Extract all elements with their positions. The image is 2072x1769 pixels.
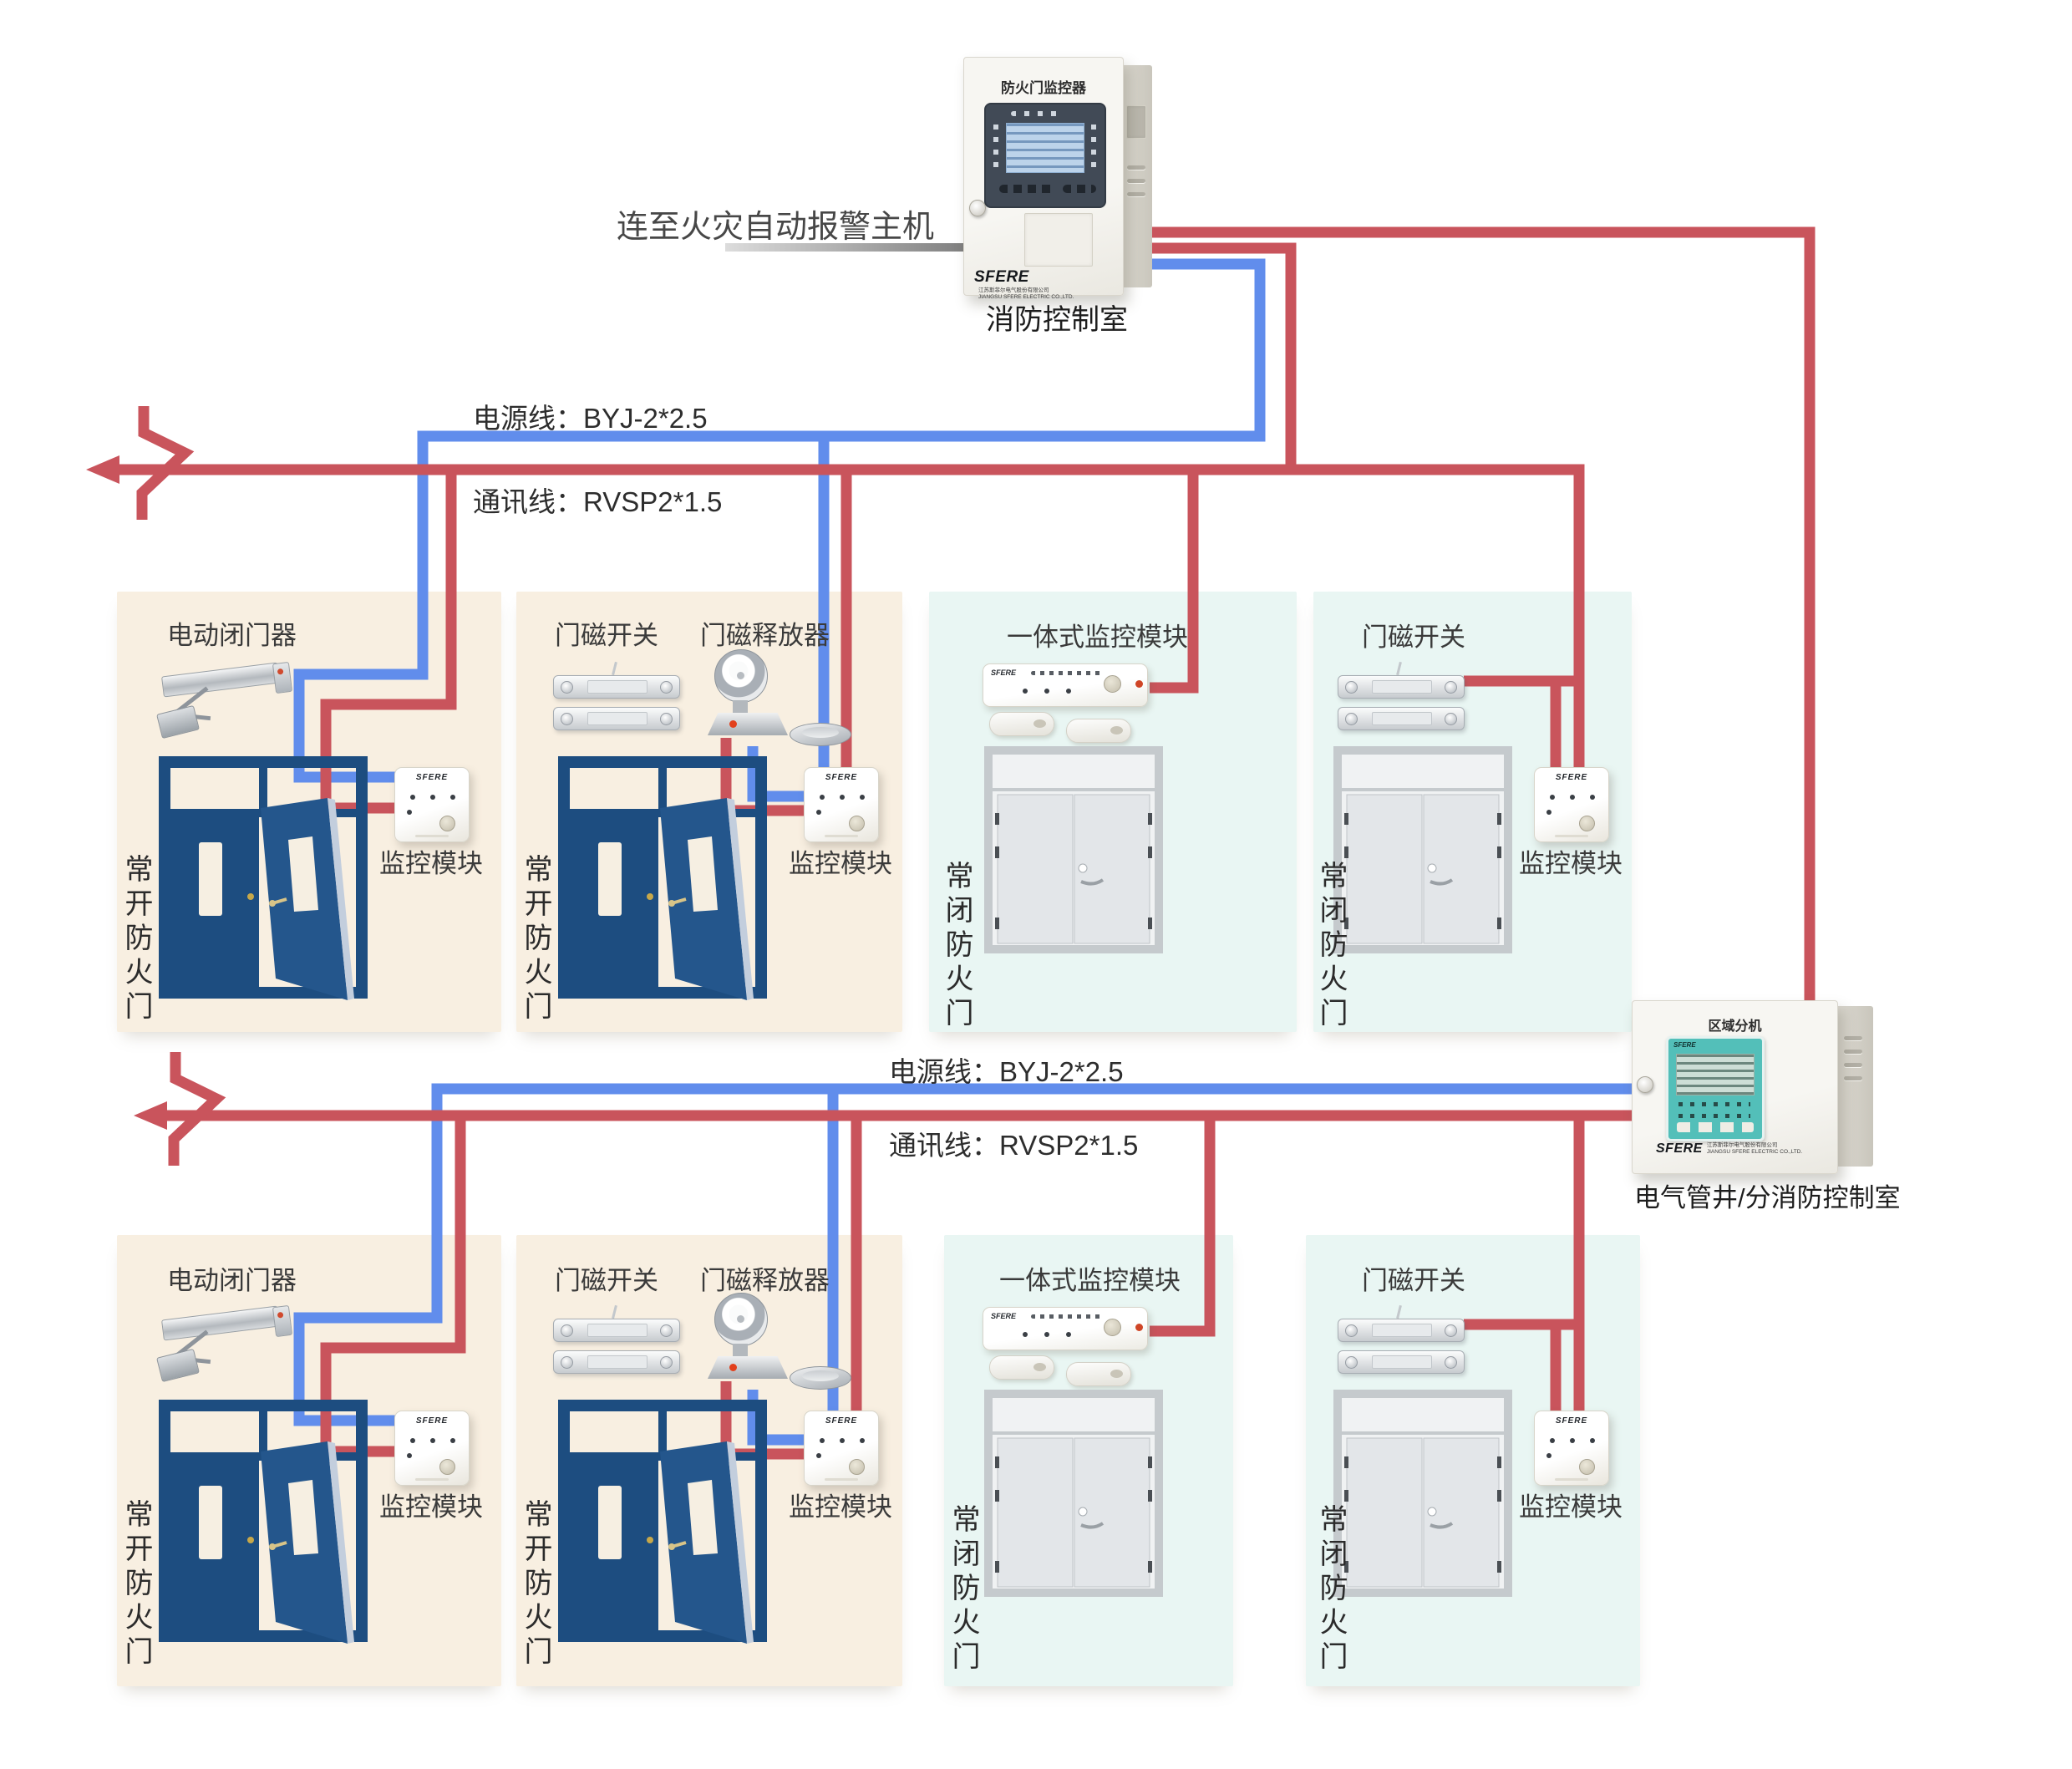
vent-icon	[1127, 165, 1145, 170]
regional-front: 区域分机 SFERE SFERE江苏斯菲尔电气股份有限公司JIANGSU SFE…	[1632, 1000, 1838, 1174]
reset-button-icon	[849, 816, 865, 831]
mag-switch-image	[1338, 1350, 1465, 1374]
mag-release-image	[706, 648, 852, 755]
closed-fire-door-image	[1333, 746, 1512, 953]
sfere-logo: SFERE	[1673, 1041, 1696, 1049]
company-name-en: JIANGSU SFERE ELECTRIC CO.,LTD.	[1707, 1149, 1802, 1155]
module-label: 监控模块	[1519, 842, 1623, 880]
power-line-label-row1: 电源线：BYJ-2*2.5	[473, 396, 708, 436]
company-name-cn: 江苏斯菲尔电气股份有限公司	[978, 287, 1049, 293]
sfere-logo: SFERE	[805, 1416, 878, 1426]
controller-title: 防火门监控器	[964, 76, 1123, 97]
side-handle	[1126, 105, 1146, 139]
company-name-cn: 江苏斯菲尔电气股份有限公司	[1707, 1142, 1778, 1148]
mag-switch-image	[553, 675, 680, 699]
mag-switch-title: 门磁开关	[1362, 616, 1465, 653]
lcd-screen	[1006, 123, 1084, 173]
vent-icon	[1127, 192, 1145, 196]
door-closer-title: 电动闭门器	[167, 614, 297, 652]
door-label: 常闭防火门	[949, 1504, 978, 1675]
integrated-module-title: 一体式监控模块	[999, 1259, 1181, 1297]
open-fire-door-image	[558, 1400, 767, 1650]
button-row	[1677, 1122, 1754, 1132]
lock-knob	[1637, 1076, 1653, 1093]
module-label: 监控模块	[1519, 1486, 1623, 1523]
mag-switch-image	[1338, 675, 1465, 699]
vent-icon	[1844, 1076, 1862, 1080]
monitor-module: SFERE	[1534, 1411, 1609, 1486]
led-column-right	[1091, 125, 1096, 171]
closed-fire-door-image	[1333, 1390, 1512, 1597]
door-label: 常闭防火门	[1317, 861, 1345, 1032]
reset-button-icon	[1579, 816, 1595, 831]
integrated-module-image: SFERE	[983, 1302, 1150, 1385]
monitor-module: SFERE	[394, 767, 470, 842]
indicator-led	[1135, 680, 1143, 688]
controller-display	[984, 103, 1106, 208]
module-label: 监控模块	[379, 842, 483, 880]
module-label: 监控模块	[789, 842, 892, 880]
sfere-logo: SFERE	[395, 773, 469, 782]
comm-line-label-row2: 通讯线：RVSP2*1.5	[889, 1123, 1138, 1163]
module-label: 监控模块	[379, 1486, 483, 1523]
door-label: 常闭防火门	[942, 861, 971, 1032]
test-button-icon	[1104, 1319, 1121, 1336]
button-row	[1063, 185, 1096, 193]
mag-switch-image	[1338, 707, 1465, 730]
sfere-logo: SFERE	[991, 668, 1016, 677]
mag-switch-title: 门磁开关	[555, 1259, 658, 1297]
module-label: 监控模块	[789, 1486, 892, 1523]
sfere-logo: SFERE	[974, 268, 1029, 286]
indicator-led	[1135, 1324, 1143, 1331]
monitor-module: SFERE	[804, 767, 879, 842]
regional-title: 区域分机	[1633, 1014, 1837, 1034]
regional-side-panel	[1835, 1006, 1873, 1167]
regional-extension-unit: 区域分机 SFERE SFERE江苏斯菲尔电气股份有限公司JIANGSU SFE…	[1632, 1000, 1876, 1174]
vent-icon	[1844, 1050, 1862, 1054]
reset-button-icon	[439, 1459, 455, 1475]
mag-release-title: 门磁释放器	[700, 614, 830, 652]
fire-door-controller: 防火门监控器 SFERE江苏斯菲尔电气股份有限公司JIANGSU SFERE E…	[963, 57, 1154, 296]
mag-switch-image	[553, 707, 680, 730]
power-line-label-row2: 电源线：BYJ-2*2.5	[889, 1050, 1124, 1090]
open-fire-door-image	[159, 756, 368, 1007]
sfere-logo: SFERE	[395, 1416, 469, 1426]
vent-icon	[1127, 179, 1145, 183]
mag-switch-title: 门磁开关	[555, 614, 658, 652]
sfere-logo: SFERE	[991, 1312, 1016, 1320]
integrated-module-image: SFERE	[983, 658, 1150, 742]
mag-switch-image	[553, 1319, 680, 1342]
test-button-icon	[1104, 675, 1121, 693]
open-fire-door-image	[558, 756, 767, 1007]
mag-release-image	[706, 1291, 852, 1398]
brand-row: SFERE江苏斯菲尔电气股份有限公司JIANGSU SFERE ELECTRIC…	[1656, 1141, 1831, 1156]
led-row	[1011, 111, 1063, 116]
door-label: 常开防火门	[521, 1499, 550, 1670]
left-arrowhead-row2	[134, 1101, 167, 1130]
left-arrowhead-row1	[86, 455, 119, 484]
closed-fire-door-image	[984, 746, 1163, 953]
door-label: 常开防火门	[521, 854, 550, 1025]
fire-control-room-caption: 消防控制室	[986, 297, 1128, 338]
led-column-left	[993, 125, 998, 171]
led-dots	[1678, 1114, 1750, 1118]
sfere-logo: SFERE	[1535, 773, 1608, 782]
vent-icon	[1844, 1036, 1862, 1040]
door-closer-image	[155, 648, 297, 741]
door-label: 常闭防火门	[1317, 1504, 1345, 1675]
sfere-logo: SFERE	[1535, 1416, 1608, 1426]
comm-line-label-row1: 通讯线：RVSP2*1.5	[473, 480, 722, 520]
controller-front: 防火门监控器 SFERE江苏斯菲尔电气股份有限公司JIANGSU SFERE E…	[963, 57, 1124, 296]
door-label: 常开防火门	[122, 1499, 150, 1670]
diagram-stage: 连至火灾自动报警主机 防火门监控器 SFERE江苏斯菲尔电气股份有限公司JIAN…	[0, 0, 2072, 1769]
reset-button-icon	[849, 1459, 865, 1475]
button-row	[999, 185, 1054, 193]
door-closer-image	[155, 1291, 297, 1385]
door-label: 常开防火门	[122, 854, 150, 1025]
document-pocket	[1024, 213, 1093, 267]
controller-side-panel	[1120, 65, 1152, 287]
integrated-module-title: 一体式监控模块	[1007, 616, 1188, 653]
regional-display: SFERE	[1666, 1036, 1765, 1141]
shaft-control-room-caption: 电气管井/分消防控制室	[1634, 1177, 1901, 1214]
monitor-module: SFERE	[1534, 767, 1609, 842]
mag-switch-title: 门磁开关	[1362, 1259, 1465, 1297]
pointer-line	[725, 243, 969, 252]
reset-button-icon	[1579, 1459, 1595, 1475]
regional-lcd	[1676, 1054, 1755, 1095]
mag-switch-image	[553, 1350, 680, 1374]
sfere-logo: SFERE	[1656, 1141, 1703, 1156]
mag-switch-image	[1338, 1319, 1465, 1342]
monitor-module: SFERE	[804, 1411, 879, 1486]
vent-icon	[1844, 1063, 1862, 1067]
lock-knob	[969, 200, 986, 216]
closed-fire-door-image	[984, 1390, 1163, 1597]
led-dots	[1678, 1102, 1750, 1106]
reset-button-icon	[439, 816, 455, 831]
sfere-logo: SFERE	[805, 773, 878, 782]
monitor-module: SFERE	[394, 1411, 470, 1486]
fire-alarm-host-label: 连至火灾自动报警主机	[617, 201, 934, 247]
open-fire-door-image	[159, 1400, 368, 1650]
